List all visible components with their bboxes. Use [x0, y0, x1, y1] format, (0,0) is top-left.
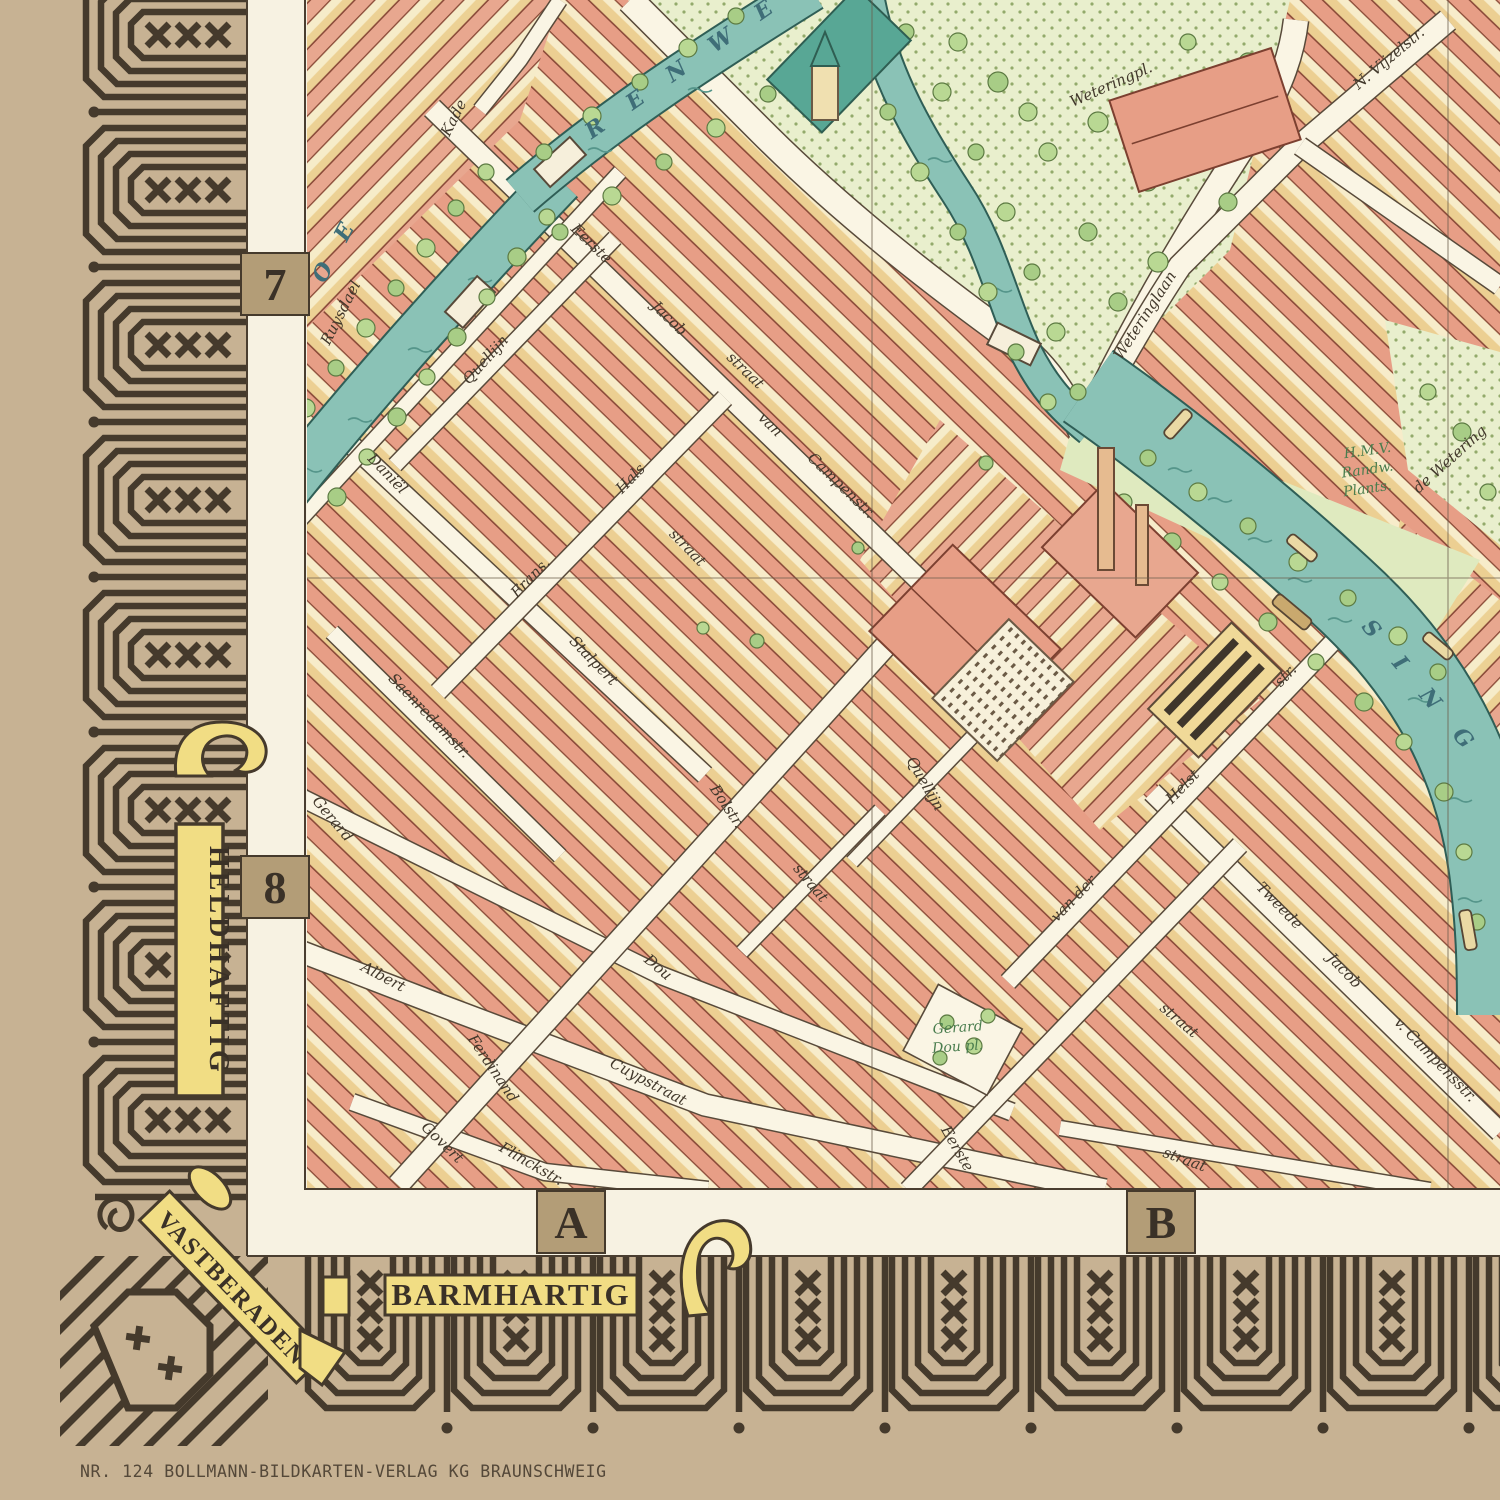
- banner-left-label: HELDHAFTIG: [203, 846, 234, 1076]
- church-tower: [812, 66, 838, 120]
- map-canvas: RuysdaelKadeQuellijnDaniëlStalpertFrans.…: [269, 0, 1500, 1190]
- factory-chimney-2: [1136, 505, 1148, 585]
- grid-label-row-7: 7: [241, 253, 309, 315]
- bollmann-amsterdam-map: RuysdaelKadeQuellijnDaniëlStalpertFrans.…: [0, 0, 1500, 1500]
- grid-row-label: 7: [264, 259, 287, 310]
- factory-chimney: [1098, 448, 1114, 570]
- pictorial-map-page: RuysdaelKadeQuellijnDaniëlStalpertFrans.…: [0, 0, 1500, 1500]
- grid-col-label: B: [1146, 1197, 1177, 1248]
- grid-col-label: A: [554, 1197, 587, 1248]
- grid-label-row-8: 8: [241, 856, 309, 918]
- grid-row-label: 8: [264, 862, 287, 913]
- grid-label-col-a: A: [537, 1191, 605, 1253]
- banner-bottom-label: BARMHARTIG: [391, 1277, 630, 1312]
- publisher-imprint: NR. 124 BOLLMANN-BILDKARTEN-VERLAG KG BR…: [80, 1462, 607, 1481]
- grid-label-col-b: B: [1127, 1191, 1195, 1253]
